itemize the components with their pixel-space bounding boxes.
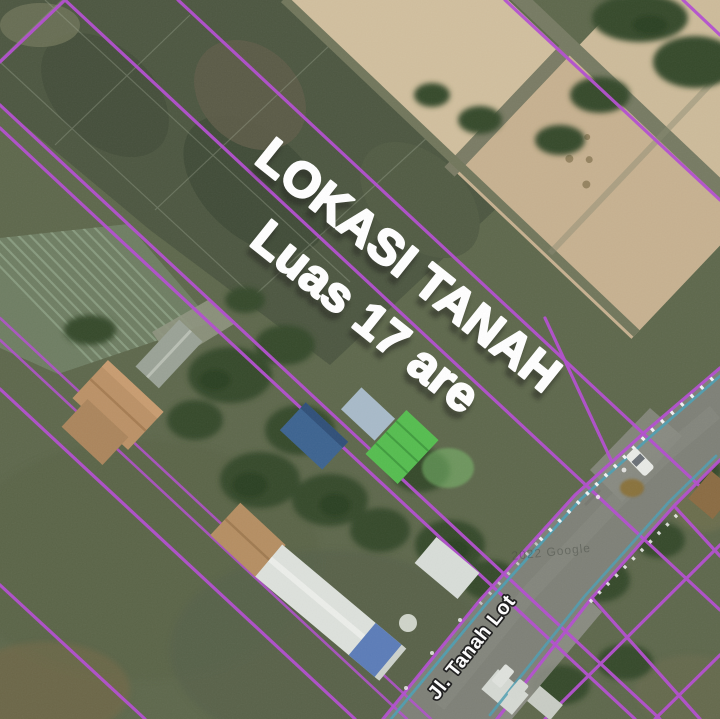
satellite-map-image[interactable]: LOKASI TANAH Luas 17 are LOKASI TANAH Lu… — [0, 0, 720, 719]
map-canvas: LOKASI TANAH Luas 17 are LOKASI TANAH Lu… — [0, 0, 720, 719]
grain-texture — [0, 0, 720, 719]
